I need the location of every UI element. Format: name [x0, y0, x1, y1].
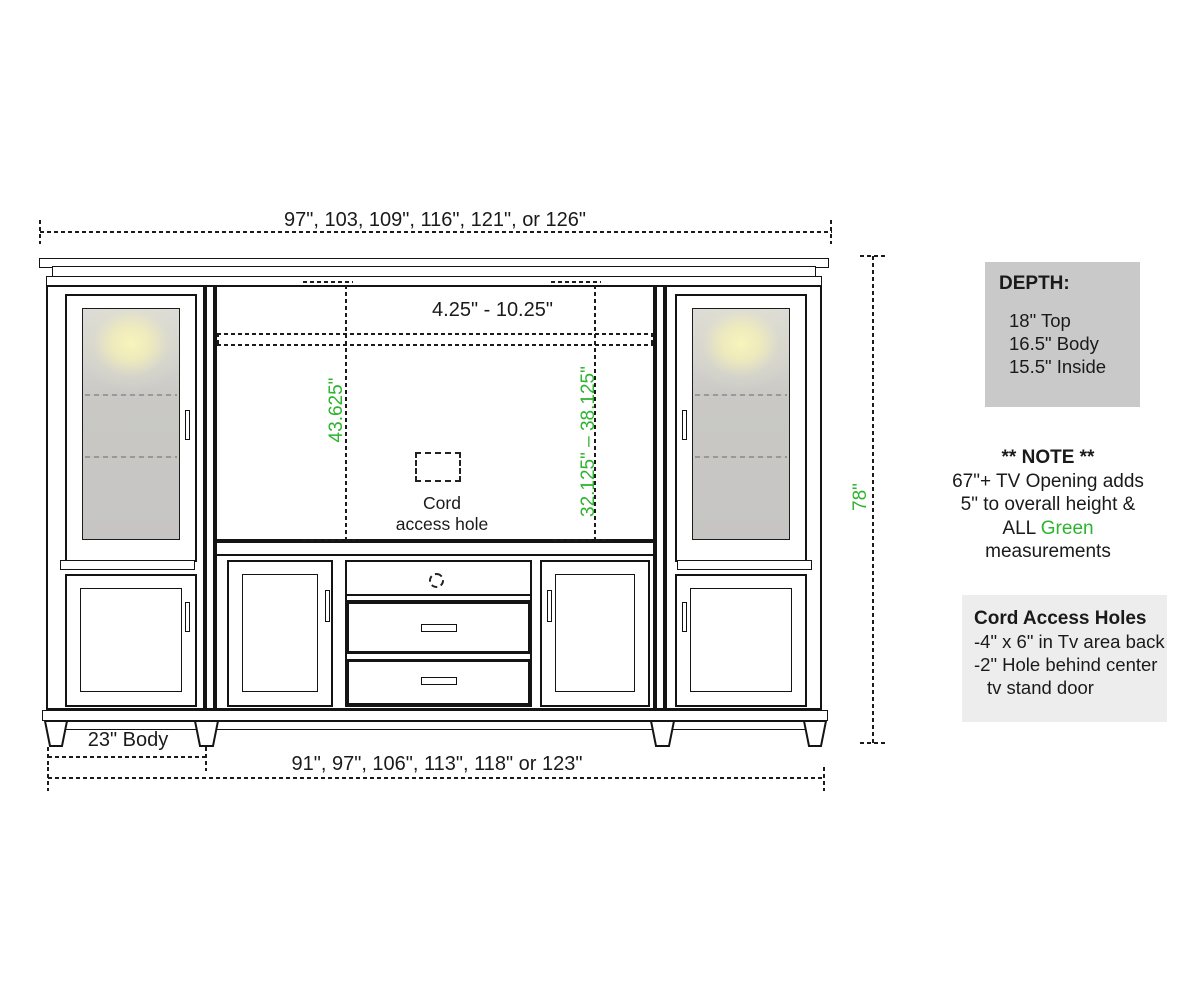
depth-item-body: 16.5" Body [1009, 332, 1140, 355]
drawer-divider-rail [347, 653, 530, 660]
left-lower-door-panel [80, 588, 182, 692]
left-tower [46, 285, 205, 710]
left-glass-door-handle [185, 410, 190, 440]
stand-right-door-handle [547, 590, 552, 622]
glass-shelf-line [695, 456, 787, 458]
scene: 97", 103, 109", 116", 121", or 126" [0, 0, 1200, 1000]
left-lower-door [65, 574, 197, 707]
drawer-top [347, 602, 530, 653]
dim-height-label: 78" [850, 472, 870, 522]
depth-box: DEPTH: 18" Top 16.5" Body 15.5" Inside [985, 262, 1140, 407]
note-line3: ALL Green [948, 517, 1148, 541]
tv-opening-gap-label: 4.25" - 10.25" [400, 299, 585, 322]
tv-dim-tick-bottom-left [303, 539, 360, 541]
dim-top-width-tick-right [830, 220, 832, 244]
tv-area-right-wall [655, 285, 665, 710]
dim-bottom-width-line [48, 777, 825, 779]
foot-right-inner [651, 721, 674, 746]
depth-item-inside: 15.5" Inside [1009, 355, 1140, 378]
dim-height-line [872, 256, 874, 743]
dim-top-width-label: 97", 103, 109", 116", 121", or 126" [175, 209, 695, 231]
depth-item-top: 18" Top [1009, 309, 1140, 332]
tv-dim-tick-top-left [303, 281, 353, 283]
right-glass-door [675, 294, 807, 562]
shelf-rail [347, 594, 530, 602]
dim-top-width-tick-left [39, 220, 41, 244]
right-glass-door-handle [682, 410, 687, 440]
dim-body-label: 23" Body [48, 729, 208, 752]
tv-height-right-label: 32.125" – 38.125" [578, 367, 598, 517]
glass-shelf-line [85, 394, 177, 396]
cord-access-label-line2: access hole [377, 514, 507, 535]
tv-dim-tick-bottom-right [553, 539, 610, 541]
stand-right-door-panel [555, 574, 635, 692]
left-lower-door-handle [185, 602, 190, 632]
stand-right-door [540, 560, 650, 707]
right-lower-door-panel [690, 588, 792, 692]
right-tower-divider [677, 560, 812, 570]
note-line2: 5" to overall height & [948, 493, 1148, 517]
note-title: ** NOTE ** [948, 446, 1148, 470]
drawer-bottom-handle [421, 677, 457, 685]
note-block: ** NOTE ** 67"+ TV Opening adds 5" to ov… [948, 446, 1148, 564]
note-line3-prefix: ALL [1002, 518, 1040, 539]
left-glass-door [65, 294, 197, 562]
drawer-top-handle [421, 624, 457, 632]
right-lower-door [675, 574, 807, 707]
tv-top-gap-band-end-right [651, 333, 653, 346]
glass-shelf-line [85, 456, 177, 458]
cord-holes-line1: -4" x 6" in Tv area back [974, 630, 1167, 653]
cord-holes-box: Cord Access Holes -4" x 6" in Tv area ba… [962, 595, 1167, 722]
cord-holes-title: Cord Access Holes [974, 608, 1167, 630]
note-line3-green-word: Green [1041, 518, 1094, 539]
glass-shelf-line [695, 394, 787, 396]
tv-top-gap-band-end-left [217, 333, 219, 346]
tv-height-left-label: 43.625" [326, 370, 346, 450]
dim-bottom-width-label: 91", 97", 106", 113", 118" or 123" [177, 753, 697, 776]
right-glass-pane [692, 308, 790, 540]
drawer-stack [345, 560, 532, 707]
stand-left-door-panel [242, 574, 318, 692]
foot-right-outer [804, 721, 826, 746]
dim-height-tick-bottom [860, 742, 886, 744]
tv-area-left-wall [205, 285, 215, 710]
depth-box-title: DEPTH: [999, 273, 1140, 295]
stand-left-door [227, 560, 333, 707]
right-lower-door-handle [682, 602, 687, 632]
tv-top-gap-band-upper [217, 333, 653, 335]
drawer-bottom [347, 660, 530, 705]
tv-dim-tick-top-right [551, 281, 601, 283]
dim-bottom-width-tick-left [47, 767, 49, 791]
note-line4: measurements [948, 540, 1148, 564]
right-tower [665, 285, 822, 710]
dim-top-width-line [40, 231, 832, 233]
tv-stand-center [215, 541, 655, 710]
cord-hole-circle [429, 573, 444, 588]
cord-access-label-line1: Cord [377, 493, 507, 514]
cord-access-hole-rect [415, 452, 461, 482]
tv-top-gap-band-lower [217, 344, 653, 346]
tv-stand-top-rail [217, 543, 653, 556]
stand-left-door-handle [325, 590, 330, 622]
cord-holes-line3: tv stand door [974, 676, 1167, 699]
note-line1: 67"+ TV Opening adds [948, 470, 1148, 494]
left-glass-pane [82, 308, 180, 540]
dim-height-tick-top [860, 255, 886, 257]
left-tower-divider [60, 560, 195, 570]
cord-holes-line2: -2" Hole behind center [974, 653, 1167, 676]
dim-bottom-width-tick-right [823, 767, 825, 791]
